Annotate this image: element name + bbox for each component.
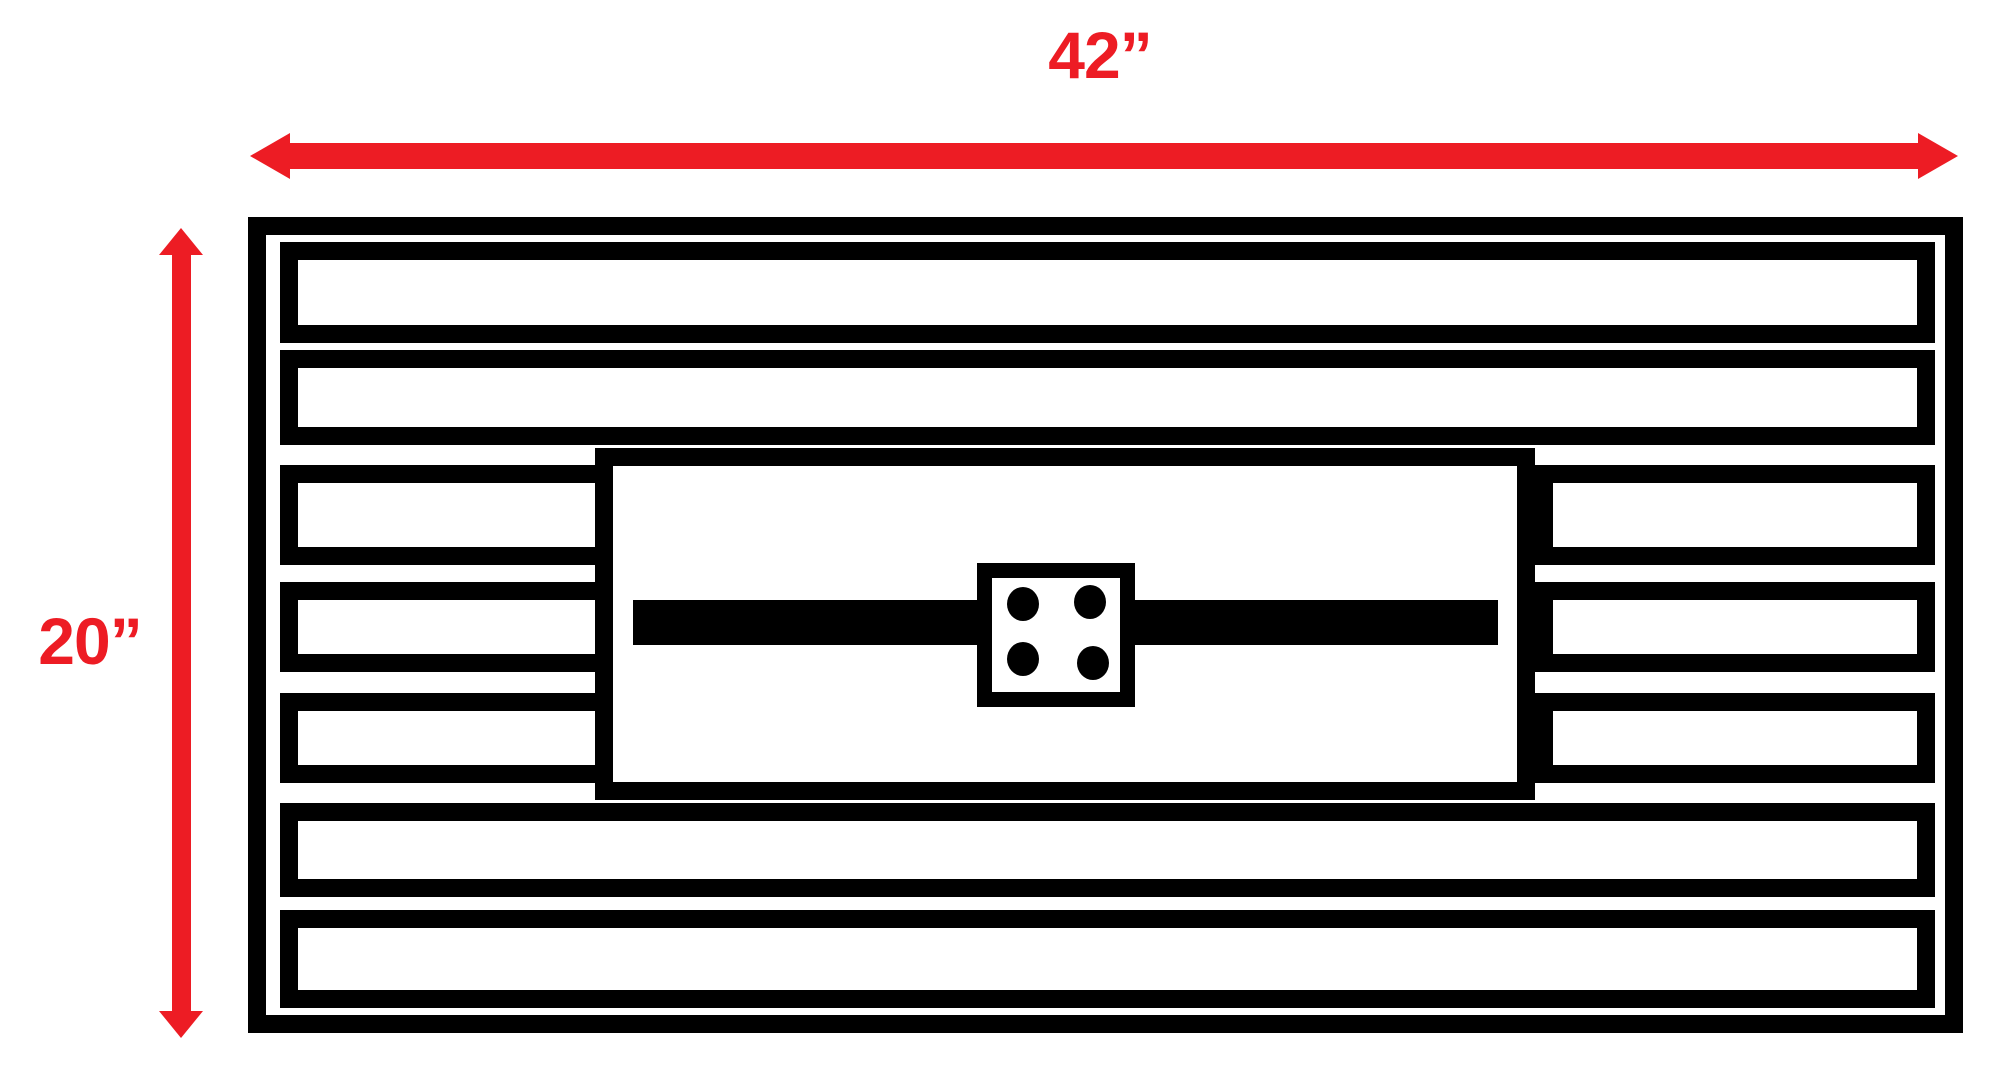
arrow-right-icon (1918, 133, 1958, 179)
bolt-icon (1077, 646, 1109, 680)
height-dimension-arrow-shaft (172, 252, 191, 1014)
slat-row-3-right (1535, 465, 1935, 565)
bolt-icon (1007, 587, 1039, 621)
slat-row-4-left (280, 582, 613, 672)
slat-row-6 (280, 803, 1935, 897)
slat-row-3-left (280, 465, 613, 565)
slat-row-1 (280, 242, 1935, 343)
bolt-icon (1007, 642, 1039, 676)
width-dimension-arrow-shaft (284, 143, 1928, 169)
bolt-plate (977, 563, 1135, 707)
width-dimension-label: 42” (1020, 22, 1180, 88)
slat-row-4-right (1535, 582, 1935, 672)
bolt-icon (1074, 585, 1106, 619)
height-dimension-label: 20” (30, 608, 150, 674)
diagram-canvas: 42” 20” (0, 0, 2000, 1090)
slat-row-5-right (1535, 693, 1935, 783)
arrow-down-icon (159, 1011, 203, 1038)
arrow-left-icon (250, 133, 290, 179)
slat-row-2 (280, 350, 1935, 445)
slat-row-7 (280, 910, 1935, 1008)
arrow-up-icon (159, 228, 203, 255)
slat-row-5-left (280, 693, 613, 783)
